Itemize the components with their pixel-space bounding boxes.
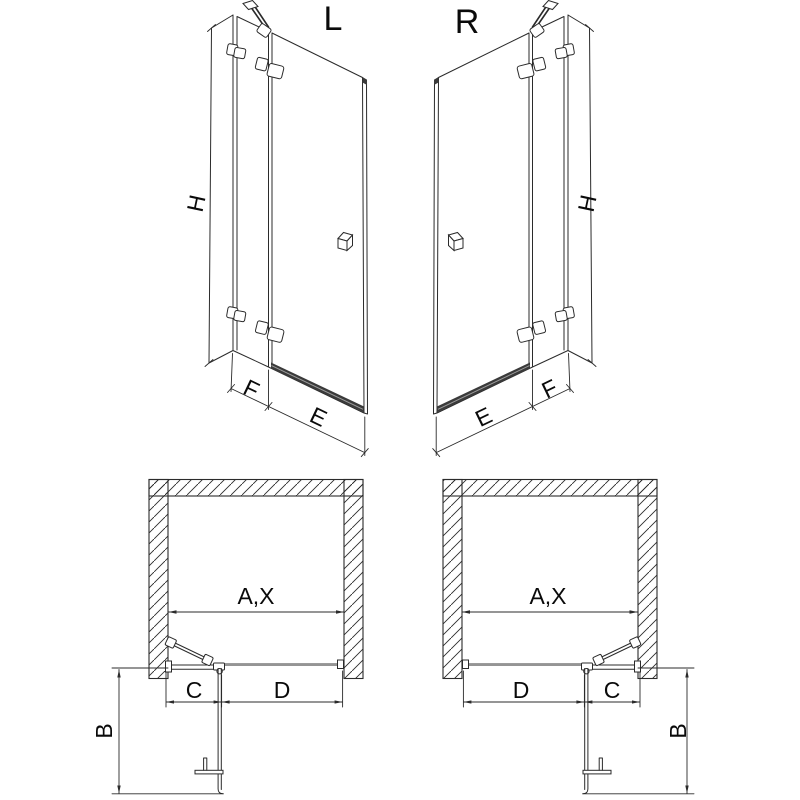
dim-label-fixed-right: F bbox=[538, 374, 562, 404]
iso-geometry-left bbox=[205, 1, 368, 457]
plan-geometry-right-mirrored bbox=[462, 610, 694, 794]
iso-view-right: R H E F bbox=[433, 1, 602, 457]
iso-view-left: L H F E bbox=[182, 0, 369, 457]
plan-view-right: A,X D C B bbox=[443, 480, 694, 794]
plan-geometry-left bbox=[112, 610, 344, 794]
iso-geometry-right-mirrored bbox=[433, 1, 596, 457]
dim-label-d-right: D bbox=[513, 677, 530, 703]
dim-label-b-left: B bbox=[91, 723, 117, 738]
shower-door-technical-diagram: L H F E R H E F A,X C D B A,X D C bbox=[0, 0, 800, 800]
dim-label-height-left: H bbox=[182, 193, 211, 215]
variant-title-right: R bbox=[455, 3, 480, 41]
dim-label-c-left: C bbox=[186, 677, 203, 703]
dim-label-entry-right: E bbox=[471, 402, 496, 432]
variant-title-left: L bbox=[324, 0, 343, 38]
dim-label-c-right: C bbox=[604, 677, 621, 703]
dim-label-height-right: H bbox=[573, 193, 602, 215]
dim-label-d-left: D bbox=[274, 677, 291, 703]
dim-label-fixed-left: F bbox=[239, 374, 263, 404]
plan-view-left: A,X C D B bbox=[91, 480, 363, 794]
dim-label-b-right: B bbox=[665, 723, 691, 738]
dim-label-entry-left: E bbox=[306, 402, 331, 432]
dim-label-niche-right: A,X bbox=[529, 583, 566, 609]
diagram-canvas: L H F E R H E F A,X C D B A,X D C bbox=[0, 0, 800, 800]
dim-label-niche-left: A,X bbox=[237, 583, 274, 609]
